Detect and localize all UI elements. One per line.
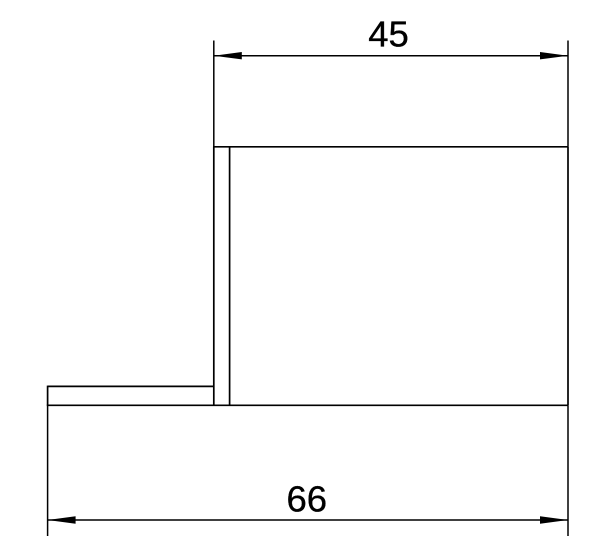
svg-text:45: 45 xyxy=(368,14,409,55)
svg-text:66: 66 xyxy=(286,479,327,520)
